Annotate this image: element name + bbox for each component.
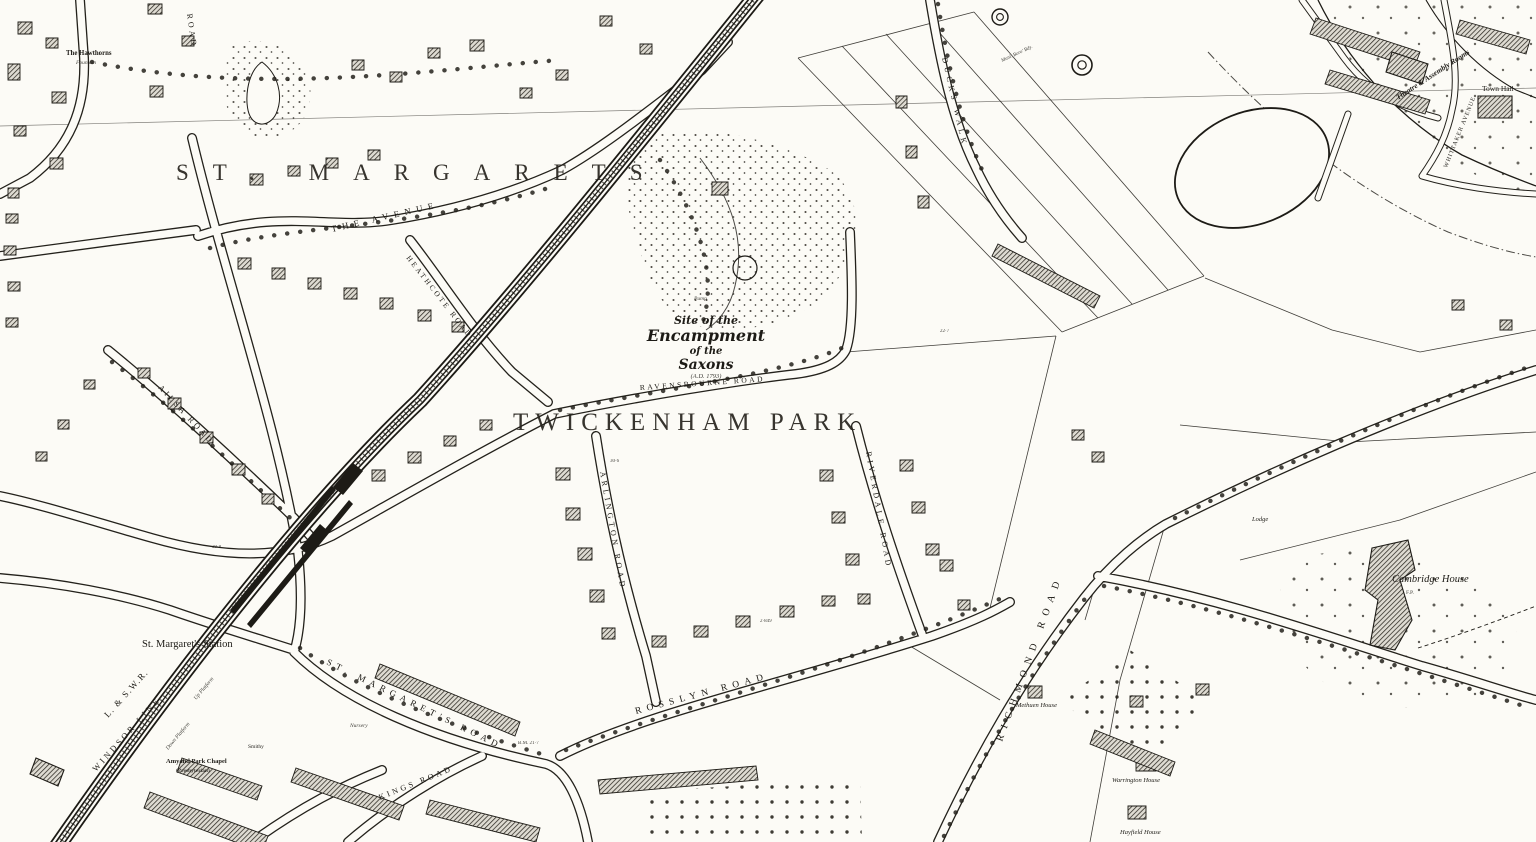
place-label-nursery: Nursery: [349, 723, 368, 729]
place-label-town-hall: Town Hall: [1482, 84, 1514, 93]
survey-annotation: B.M. 21·7: [518, 741, 539, 746]
place-label-amyand-park-chapel: Amyand Park Chapel: [166, 758, 227, 765]
place-label-pump: Pump: [693, 296, 707, 302]
map-canvas[interactable]: ST. MARGARETS TWICKENHAM PARK Site of th…: [0, 0, 1536, 842]
survey-annotation: 2·849: [760, 619, 772, 624]
place-label-amyand-park-chapel-note: (Presbyterian): [176, 767, 210, 774]
footpath-abbrev-label: F.P.: [1406, 590, 1414, 596]
antiquity-note-line4: Saxons: [679, 357, 734, 373]
place-label-the-hawthorns: The Hawthorns: [66, 50, 112, 57]
antiquity-note-line2: Encampment: [646, 326, 766, 345]
district-label-twickenham-park: TWICKENHAM PARK: [513, 409, 862, 436]
place-label-lodge: Lodge: [1251, 516, 1268, 523]
place-label-methuen-house: Methuen House: [1015, 702, 1057, 709]
survey-annotation: 30·6: [610, 459, 620, 464]
station-label: St. Margaret's Station: [142, 639, 233, 650]
place-label-smithy: Smithy: [248, 744, 264, 750]
map-viewport: ST. MARGARETS TWICKENHAM PARK Site of th…: [0, 0, 1536, 842]
place-label-fountain: Fountain: [75, 60, 96, 66]
place-label-cambridge-house: Cambridge House: [1392, 574, 1469, 585]
survey-annotation: 22·7: [940, 329, 950, 334]
place-label-warrington-house: Warrington House: [1112, 777, 1160, 784]
district-label-st-margarets: ST. MARGARETS: [176, 160, 667, 185]
place-label-hayfield-house: Hayfield House: [1119, 829, 1161, 836]
survey-annotation: 39·8: [212, 545, 222, 550]
antiquity-note-line3: of the: [690, 346, 723, 357]
